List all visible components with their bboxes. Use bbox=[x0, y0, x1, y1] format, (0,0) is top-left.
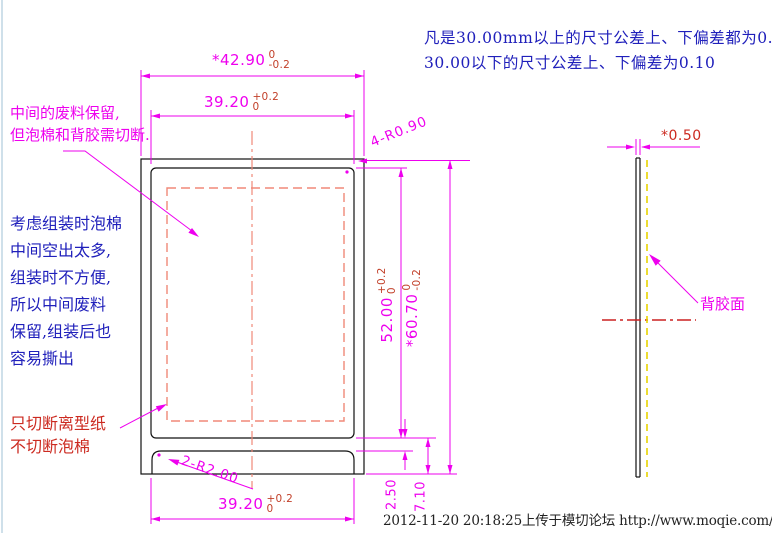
keep-waste-note-line2: 但泡棉和背胶需切断. bbox=[10, 124, 150, 145]
dim-tab-width-value: 39.20 bbox=[218, 495, 263, 513]
cut-liner-note-line2: 不切断泡棉 bbox=[10, 433, 90, 457]
assembly-note-line4: 所以中间废料 bbox=[10, 291, 106, 315]
dim-outer-height-value: *60.70 bbox=[403, 294, 421, 347]
assembly-note-line1: 考虑组装时泡棉 bbox=[10, 210, 122, 234]
dim-outer-height-tol-lower: -0.2 bbox=[412, 269, 422, 291]
dim-outer-width-tol-lower: -0.2 bbox=[268, 60, 290, 70]
dim-inner-height: 52.00 +0.2 0 bbox=[374, 266, 400, 344]
tolerance-note-line2: 30.00以下的尺寸公差上、下偏差为0.10 bbox=[424, 51, 715, 73]
dim-outer-width-value: *42.90 bbox=[212, 51, 265, 69]
dim-inner-height-value: 52.00 bbox=[378, 297, 396, 342]
dim-outer-width: *42.90 0 -0.2 bbox=[212, 50, 290, 70]
dim-gap-part-tab: 2.50 bbox=[385, 477, 400, 513]
adhesive-face-label: 背胶面 bbox=[700, 293, 745, 314]
leader-cut-liner bbox=[120, 407, 160, 428]
assembly-note-line6: 容易撕出 bbox=[10, 345, 74, 369]
tolerance-note-line1: 凡是30.00mm以上的尺寸公差上、下偏差都为0.15 bbox=[424, 26, 772, 48]
dim-tab-width: 39.20 +0.2 0 bbox=[218, 494, 293, 514]
dim-thickness: *0.50 bbox=[661, 128, 702, 144]
dim-tab-width-tol-lower: 0 bbox=[266, 504, 293, 514]
leader-target-dot-tab-corner bbox=[157, 453, 160, 456]
dim-inner-width-value: 39.20 bbox=[204, 93, 249, 111]
dim-outer-height: *60.70 0 -0.2 bbox=[399, 264, 425, 352]
dim-inner-width: 39.20 +0.2 0 bbox=[204, 92, 279, 112]
cut-liner-note-line1: 只切断离型纸 bbox=[10, 410, 106, 434]
assembly-note-line2: 中间空出太多, bbox=[10, 237, 111, 261]
leader-adhesive-face bbox=[656, 261, 698, 303]
waste-area-dashed-rect bbox=[167, 188, 344, 421]
keep-waste-note-line1: 中间的废料保留, bbox=[10, 102, 120, 123]
dim-inner-width-tol-lower: 0 bbox=[252, 102, 279, 112]
assembly-note-line5: 保留,组装后也 bbox=[10, 318, 111, 342]
upload-timestamp: 2012-11-20 20:18:25上传于模切论坛 http://www.mo… bbox=[383, 509, 772, 529]
assembly-note-line3: 组装时不方便, bbox=[10, 264, 111, 288]
dim-inner-height-tol-lower: 0 bbox=[387, 267, 397, 294]
leader-target-dot-part-corner bbox=[345, 170, 348, 173]
engineering-drawing-sheet: 凡是30.00mm以上的尺寸公差上、下偏差都为0.15 30.00以下的尺寸公差… bbox=[0, 0, 772, 533]
